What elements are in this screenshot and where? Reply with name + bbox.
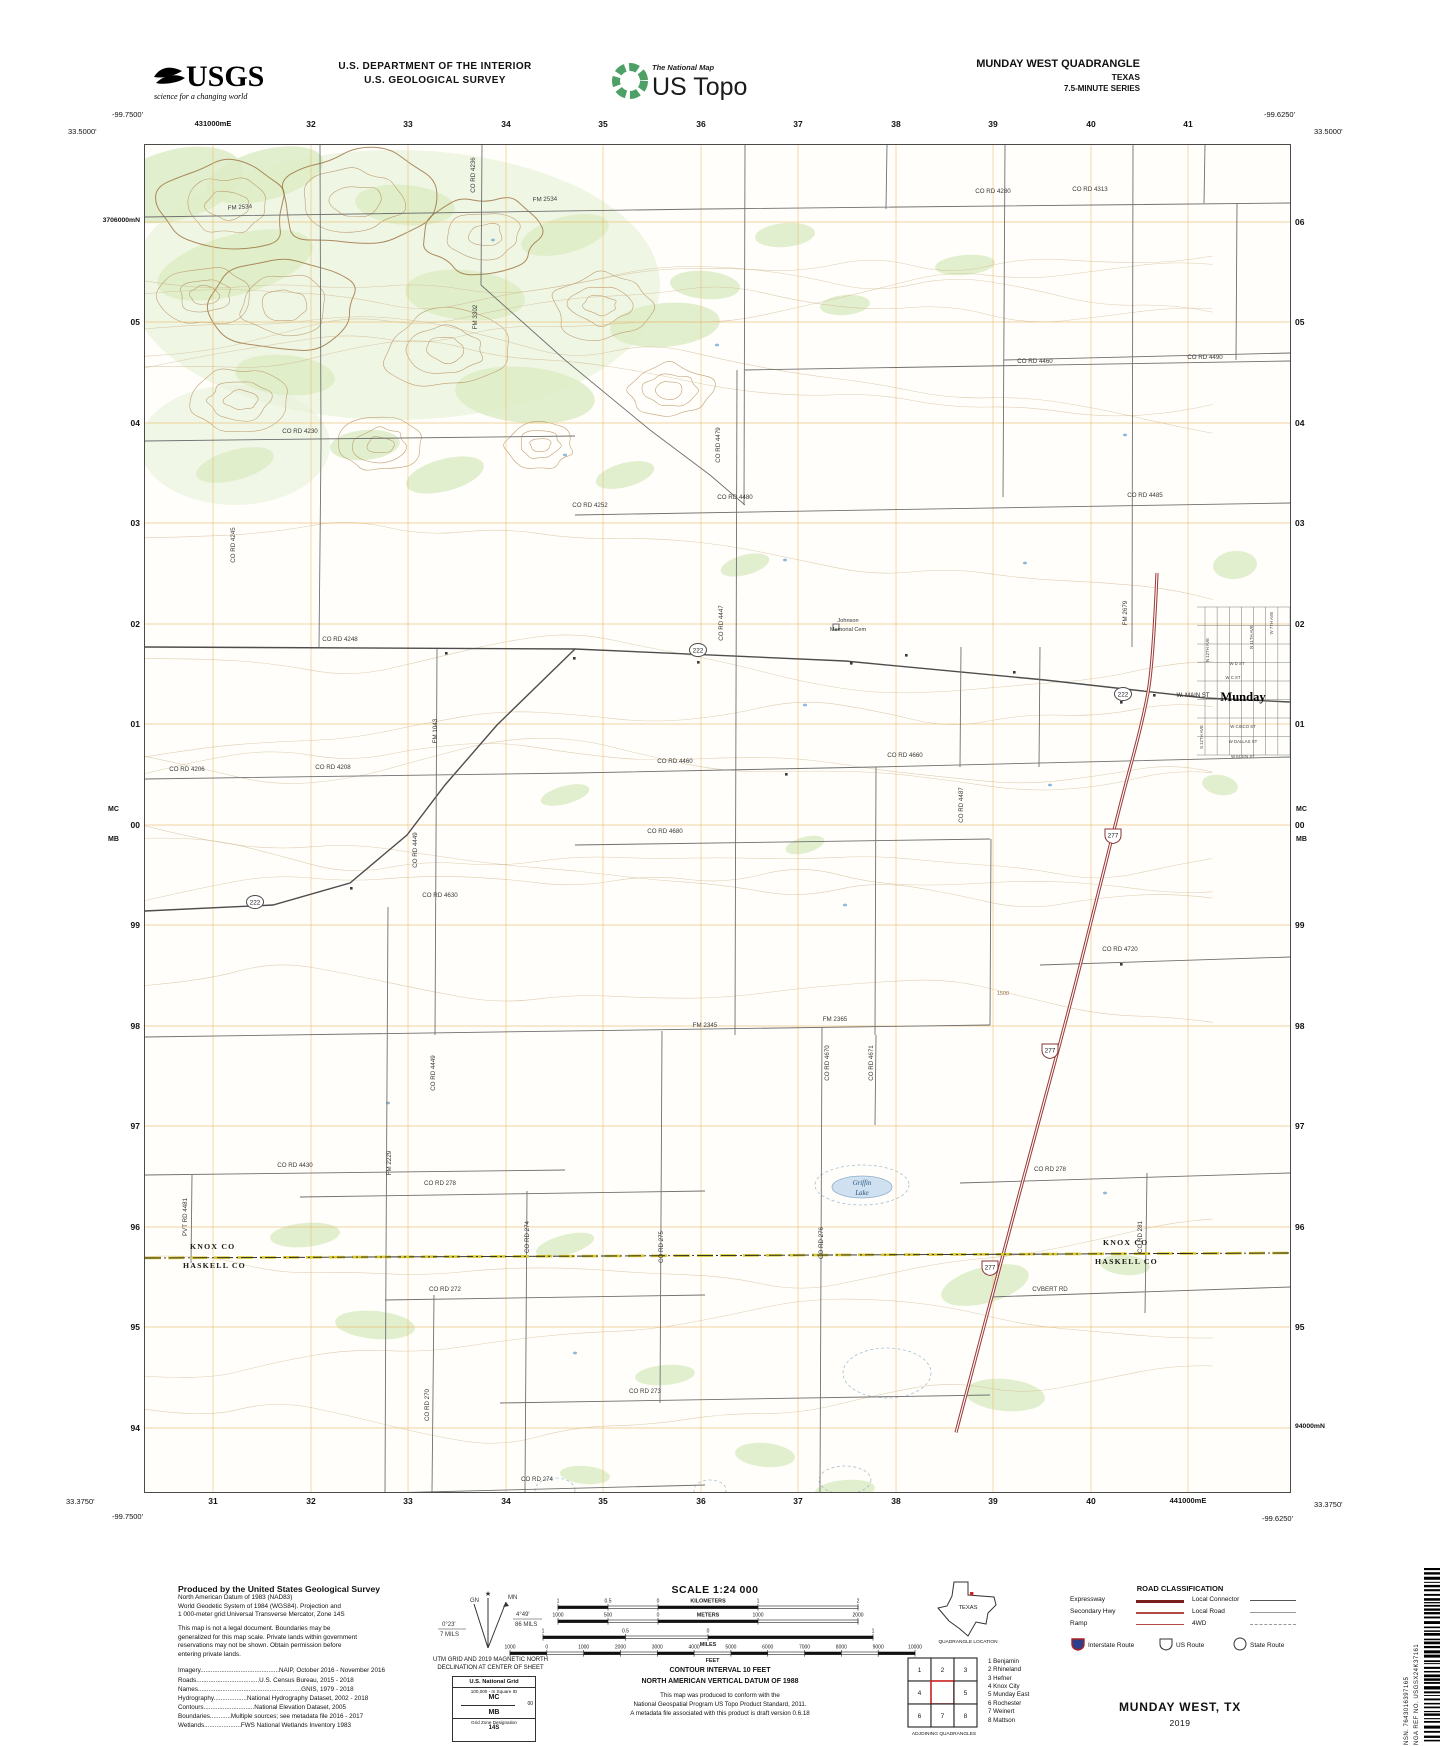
adjoining-name: 4 Knox City [988,1683,1068,1691]
map-label-rd: CO RD 4460 [657,758,693,765]
scale-bar-seg [543,1636,626,1639]
barcode-bar [1424,1585,1440,1587]
scale-bar-seg [558,1606,608,1609]
grid-label-right: 99 [1295,920,1377,930]
pond-dot [1023,562,1027,565]
scale-tick-label: 0 [545,1645,548,1651]
barcode-bar [1424,1602,1440,1603]
map-label-county: HASKELL CO [183,1261,246,1270]
veg-patch [539,780,592,810]
barcode-bar [1424,1633,1440,1636]
adjoining-grid: 12345678 [906,1656,980,1730]
texas-caption: QUADRANGLE LOCATION [922,1640,1014,1647]
roadclass-label: Ramp [1070,1620,1087,1627]
map-label-rd: CO RD 4490 [1187,354,1223,361]
map-label-town: Munday [1220,690,1266,704]
veg-base [145,385,330,505]
pond-dot [573,1352,577,1355]
scale-tick-label: 9000 [873,1645,884,1651]
usgs-topo-sheet: USGS science for a changing world U.S. D… [0,0,1445,1746]
ustopo-large: US Topo [652,73,747,101]
pond-dot [843,904,847,907]
pond-dot [491,239,495,242]
mc-mb-label: MB [108,836,119,843]
true-north-star: ★ [485,1590,491,1598]
grid-label-bottom: 36 [666,1496,736,1506]
gn-mils: 7 MILS [440,1632,459,1638]
scale-tick-label: 2 [857,1599,860,1605]
scale-tick-label: 1 [557,1599,560,1605]
adjoining-names: 1 Benjamin2 Rhineland3 Hefner4 Knox City… [988,1658,1068,1725]
map-label-rd: CO RD 4680 [647,828,683,835]
map-label-rd: CO RD 274 [524,1220,531,1253]
map-label-rd: CO RD 4630 [422,892,458,899]
local-road [500,1395,990,1403]
barcode-bar [1424,1612,1440,1614]
veg-patch [934,252,996,277]
datum-line: 1 000-meter grid:Universal Transverse Me… [178,1611,433,1620]
quad-location-dot [970,1592,973,1595]
local-road [385,907,388,1492]
contour-line [530,439,551,452]
barcode-bar [1424,1589,1440,1591]
scale-bar-seg [731,1652,768,1655]
barcode-bar [1424,1718,1440,1719]
grid-label-top: 33 [373,119,443,129]
local-road [1003,145,1005,497]
roadclass-label: Local Road [1192,1608,1225,1615]
us-route-label: US Route [1176,1642,1205,1649]
barcode-bar [1424,1642,1440,1645]
map-label-st: N 12TH AVE [1205,638,1210,662]
grid-label-right: 04 [1295,418,1377,428]
scale-unit-label: MILES [700,1642,717,1648]
quad-state: TEXAS [965,72,1140,82]
map-label-st: W DALLAS ST [1229,739,1258,744]
contour-line [145,869,1213,905]
barcode-bar [1424,1711,1440,1712]
interstate-shield-icon [1072,1639,1084,1650]
usng-zone: 14S [453,1725,535,1731]
scale-tick-label: 6000 [762,1645,773,1651]
barcode-nsn-text: NSN. 7643016397165 [1404,1677,1410,1745]
scale-unit-label: FEET [706,1658,720,1664]
grid-label-right: 96 [1295,1222,1377,1232]
barcode-bar [1424,1691,1440,1693]
local-road [1132,145,1133,647]
building [1120,963,1123,966]
sheet-year: 2019 [1090,1718,1270,1728]
map-label-stm: W. MAIN ST [1177,693,1210,699]
map-label-rd: CO RD 4208 [315,764,351,771]
adjoining-cell-number: 4 [918,1690,922,1697]
local-road [1039,647,1040,767]
adjoining-name: 5 Munday East [988,1691,1068,1699]
adjoining-cell-number: 7 [941,1713,945,1720]
contour-line [627,361,716,416]
grid-label-top: 32 [276,119,346,129]
scale-unit-label: KILOMETERS [690,1599,726,1605]
roadclass-line-sample [1136,1624,1184,1625]
scale-tick-label: 1000 [504,1645,515,1651]
adjoining-cell-number: 6 [918,1713,922,1720]
legal-line: generalized for this map scale. Private … [178,1634,433,1643]
map-label-rd: CO RD 4460 [1017,358,1053,365]
pond-dot [1123,434,1127,437]
route-shield-number: 222 [250,899,261,906]
scale-tick-label: 1000 [578,1645,589,1651]
barcode-bar [1424,1572,1440,1574]
grid-label-top: 39 [958,119,1028,129]
grid-label-right: 02 [1295,619,1377,629]
map-label-rd: CO RD 4245 [230,527,237,563]
local-road [1204,145,1205,203]
grid-label-top: 34 [471,119,541,129]
grid-label-bottom: 34 [471,1496,541,1506]
us-route-shield-icon [1160,1639,1172,1650]
quad-series: 7.5-MINUTE SERIES [965,84,1140,93]
contour-line [145,522,1213,599]
sheet-title: MUNDAY WEST, TX [1090,1700,1270,1714]
building [785,773,788,776]
barcode-bar [1424,1577,1440,1580]
map-label-rd: CO RD 4313 [1072,186,1108,193]
grid-label-bottom: 35 [568,1496,638,1506]
usng-id-bottom: MB [453,1709,535,1716]
scale-tick-label: 1 [542,1629,545,1635]
contour-line [145,838,1213,878]
route-shield-number: 222 [693,647,704,654]
building [350,887,353,890]
adjoining-name: 8 Mattson [988,1717,1068,1725]
map-label-rd: CO RD 273 [629,1388,662,1395]
scale-tick-label: 3000 [652,1645,663,1651]
map-label-st: W C ST [1225,675,1240,680]
local-road [744,145,745,505]
barcode-bar [1424,1671,1440,1673]
map-label-rd: CO RD 275 [658,1230,665,1263]
barcode-bar [1424,1568,1440,1570]
corner-coord: -99.7500' [112,1512,143,1521]
barcode-bar [1424,1703,1440,1705]
map-label-rd: FM 1043 [432,718,439,743]
roadclass-label: 4WD [1192,1620,1206,1627]
state-route-circle-icon [1234,1638,1246,1650]
contour-line [145,635,1213,693]
barcode-bar [1424,1646,1440,1648]
roadclass-shield-row: Interstate RouteUS RouteState Route [1068,1636,1298,1652]
map-label-rd: CO RD 274 [521,1476,554,1483]
map-label-rd: CO RD 276 [818,1226,825,1259]
scale-bar-seg [657,1652,694,1655]
scale-bar-seg [658,1620,758,1623]
pond-dot [715,344,719,347]
local-road [385,1485,705,1492]
grid-label-left: 3706000mN [58,217,140,224]
map-label-rd: CO RD 4449 [412,832,419,868]
adjoining-cell [931,1681,954,1704]
veg-patch [754,220,816,249]
barcode-bar [1424,1582,1440,1583]
map-label-rd: CO RD 281 [1137,1220,1144,1253]
corner-coord: -99.6250' [1262,1514,1293,1523]
barcode-bar [1424,1617,1440,1619]
grid-label-top: 40 [1056,119,1126,129]
roadclass-label: Local Connector [1192,1596,1239,1603]
scale-bar-seg [805,1652,842,1655]
barcode-bar [1424,1686,1440,1689]
credit-lines: Imagery.................................… [178,1666,433,1730]
roadclass-line-sample [1136,1612,1184,1614]
legal-line: entering private lands. [178,1651,433,1660]
map-label-rd: CO RD 4248 [322,636,358,643]
building [850,662,853,665]
credit-line: Names...................................… [178,1685,433,1694]
local-road [145,1170,565,1175]
corner-coord: -99.6250' [1264,110,1295,119]
barcode-bar [1424,1736,1440,1738]
pond-dot [1103,1192,1107,1195]
texas-label: TEXAS [958,1605,977,1611]
barcode-bar [1424,1678,1440,1680]
texas-inset: TEXAS [930,1580,1006,1640]
scale-tick-label: 10000 [908,1645,922,1651]
veg-patch [1212,549,1258,581]
map-label-rd: CO RD 4447 [718,605,725,641]
local-road [300,1191,705,1197]
grid-label-left: 03 [58,518,140,528]
adjoining-name: 2 Rhineland [988,1666,1068,1674]
building [697,661,700,664]
barcode-bar [1424,1682,1440,1684]
local-road [385,1295,705,1300]
map-label-rd: CO RD 278 [1034,1166,1067,1173]
map-label-st: N 11TH AVE [1249,625,1254,649]
scale-tick-label: 1 [872,1629,875,1635]
interstate-route-label: Interstate Route [1088,1642,1135,1649]
contour-line [504,421,573,468]
local-road [1040,957,1290,965]
local-road [575,839,990,845]
contour-line [145,702,1213,760]
scale-bar [510,1652,915,1655]
usgs-tagline: science for a changing world [154,92,248,101]
roadclass-label: Secondary Hwy [1070,1608,1116,1615]
veg-patch [634,1362,696,1387]
veg-patch [402,449,488,501]
route-shield-number: 277 [1108,832,1119,839]
building [905,654,908,657]
scale-unit-label: METERS [697,1613,720,1619]
quad-name: MUNDAY WEST QUADRANGLE [965,58,1140,70]
grid-label-top: 38 [861,119,931,129]
map-label-rd: CO RD 4670 [824,1045,831,1081]
grid-label-left: 00 [58,820,140,830]
barcode-bar [1424,1713,1440,1715]
local-road [886,145,887,209]
pond-dot [803,704,807,707]
grid-label-bottom: 39 [958,1496,1028,1506]
roadclass-title: ROAD CLASSIFICATION [1075,1584,1285,1593]
scale-bar-seg [708,1636,873,1639]
map-label-rd: CO RD 4449 [430,1055,437,1091]
barcode-bar [1424,1731,1440,1733]
building [1153,694,1156,697]
veg-patch [269,1220,341,1250]
grid-label-bottom: 37 [763,1496,833,1506]
barcode-bar [1424,1639,1440,1641]
grid-label-bottom: 31 [178,1496,248,1506]
map-label-st: W CISCO ST [1230,724,1256,729]
usng-id-mid: 00 [527,1701,533,1707]
contour-interval: CONTOUR INTERVAL 10 FEET [570,1666,870,1677]
corner-coord: 33.5000' [1314,127,1343,136]
veg-patch [734,1440,796,1469]
grid-label-bottom: 40 [1056,1496,1126,1506]
adjoining-cell-number: 5 [964,1690,968,1697]
scale-tick-label: 2000 [852,1613,863,1619]
credit-line: Contours.............................Nat… [178,1703,433,1712]
barcode [1424,1566,1440,1746]
legal-line: This map is not a legal document. Bounda… [178,1625,433,1634]
scale-bar-seg [584,1652,621,1655]
mc-mb-label: MC [108,806,119,813]
map-label-rd: CO RD 4480 [717,494,753,501]
barcode-bar [1424,1594,1440,1596]
datum-lines: North American Datum of 1983 (NAD83)Worl… [178,1594,433,1620]
grid-label-top: 35 [568,119,638,129]
contour-line [521,431,561,459]
adjoining-cell-number: 8 [964,1713,968,1720]
roadclass-line-sample [1250,1600,1296,1601]
mc-mb-label: MC [1296,806,1307,813]
barcode-bar [1424,1655,1440,1658]
veg-patch [669,268,741,302]
scale-bar-seg [558,1620,608,1623]
veg-patch [784,832,827,858]
grid-label-left: 95 [58,1322,140,1332]
barcode-bar [1424,1650,1440,1653]
scale-tick-label: 4000 [689,1645,700,1651]
credit-line: Boundaries............Multiple sources; … [178,1712,433,1721]
scale-tick-label: 1 [757,1599,760,1605]
veg-patch [329,427,401,463]
roadclass-line-sample [1136,1600,1184,1603]
grid-label-right: 01 [1295,719,1377,729]
local-road [990,839,991,1025]
map-label-county: HASKELL CO [1095,1257,1158,1266]
adjoining-name: 1 Benjamin [988,1658,1068,1666]
grid-label-left: 98 [58,1021,140,1031]
us-277-highway-centerline [956,573,1157,1433]
map-label-county: KNOX CO [1103,1238,1148,1247]
gn-degrees: 0°23' [442,1622,456,1628]
grid-label-left: 02 [58,619,140,629]
map-label-rd: CO RD 4671 [868,1045,875,1081]
map-label-rd: CO RD 4487 [958,787,965,823]
grid-label-left: 96 [58,1222,140,1232]
map-label-lake: Lake [854,1190,868,1197]
building [1013,671,1016,674]
grid-label-left: 01 [58,719,140,729]
corner-coord: -99.7500' [112,110,143,119]
map-label-rd: FM 3302 [472,304,479,329]
map-label-ct: 1500 [997,991,1009,997]
building [1120,701,1123,704]
map-label-rd: CO RD 4252 [572,502,608,509]
usgs-word: USGS [186,60,264,93]
map-label-lake: Griffin [853,1180,872,1187]
pond-dot [783,559,787,562]
veg-patch [718,549,771,581]
roadclass-line-sample [1250,1612,1296,1613]
barcode-bar [1424,1698,1440,1700]
barcode-bar [1424,1695,1440,1696]
gn-label: GN [470,1598,479,1604]
local-road [575,503,1290,515]
grid-label-bottom: 33 [373,1496,443,1506]
barcode-bar [1424,1621,1440,1624]
map-label-rd: CO RD 4230 [282,428,318,435]
map-label-st: W EDEN ST [1231,754,1255,759]
barcode-nga-text: NGA REF NO. USGSX24K37161 [1414,1644,1420,1745]
conform-note: This map was produced to conform with th… [560,1692,880,1719]
barcode-bar [1424,1627,1440,1629]
veg-patch [1201,772,1240,798]
local-road [432,1295,434,1492]
corner-coord: 33.5000' [68,127,97,136]
scale-tick-label: 0 [707,1629,710,1635]
ustopo-logo: The National Map US Topo [608,52,818,104]
map-label-rd: CO RD 4430 [277,1162,313,1169]
conform-line: This map was produced to conform with th… [560,1692,880,1701]
adjoining-cell-number: 1 [918,1667,922,1674]
barcode-bar [1424,1674,1440,1677]
grid-label-right: 98 [1295,1021,1377,1031]
map-label-rd: CO RD 4720 [1102,946,1138,953]
produced-by-block: Produced by the United States Geological… [178,1584,433,1730]
local-road [735,370,737,1035]
scale-bar-seg [658,1606,758,1609]
grid-label-bottom: 441000mE [1153,1496,1223,1505]
map-label-rd: PVT RD 4481 [182,1197,189,1236]
roadclass-line-sample [1250,1624,1296,1625]
map-label-rd: CO RD 4479 [715,427,722,463]
legal-lines: This map is not a legal document. Bounda… [178,1625,433,1660]
grid-label-right: 97 [1295,1121,1377,1131]
intermittent-pond [843,1348,931,1398]
dept-line2: U.S. GEOLOGICAL SURVEY [290,74,580,88]
contour-line [145,965,1213,1022]
roadclass-legend: ExpresswaySecondary HwyRampLocal Connect… [1068,1596,1298,1656]
usng-zone-label: Grid Zone Designation [453,1718,535,1725]
us-277-highway [956,573,1157,1433]
grid-label-left: 04 [58,418,140,428]
contour-line [642,374,699,406]
route-shield-number: 277 [1045,1047,1056,1054]
map-graphic: 222222222277277277FM 2534FM 2534CO RD 42… [145,145,1290,1492]
barcode-bar [1424,1630,1440,1631]
usng-title: U.S. National Grid [453,1677,535,1688]
barcode-bar [1424,1707,1440,1709]
grid-label-right: 00 [1295,820,1377,830]
map-label-cem: Memorial Cem [830,627,867,633]
datum-line: North American Datum of 1983 (NAD83) [178,1594,433,1603]
dept-line1: U.S. DEPARTMENT OF THE INTERIOR [290,60,580,74]
map-label-rd: CO RD 4206 [169,766,205,773]
dept-heading: U.S. DEPARTMENT OF THE INTERIOR U.S. GEO… [290,60,580,87]
local-road [960,1173,1290,1183]
